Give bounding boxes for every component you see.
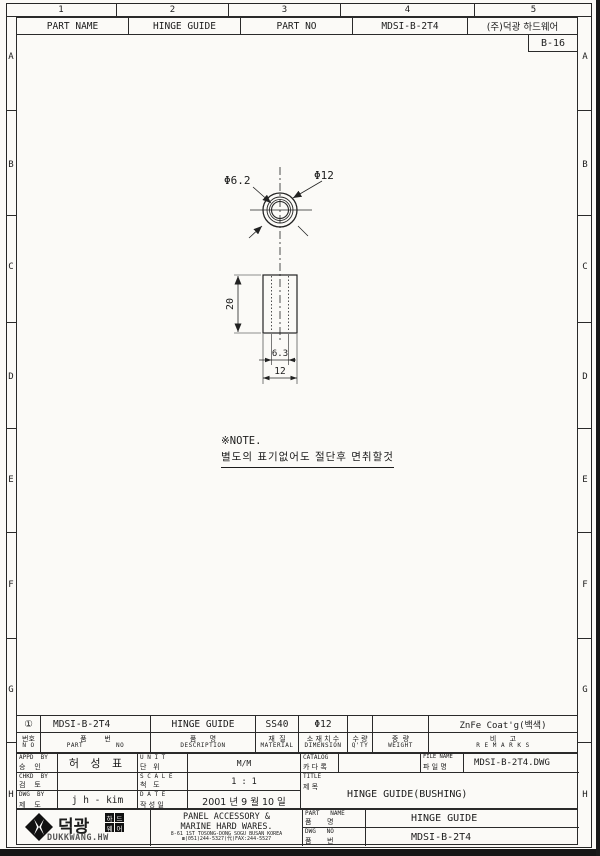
grid-letter-left-e: E — [6, 474, 16, 486]
dim-body-width: 12 — [274, 366, 285, 377]
parts-row-description: HINGE GUIDE — [151, 716, 256, 732]
zone-number-row: 1 2 3 4 5 — [6, 3, 592, 17]
note-title: ※NOTE. — [221, 434, 394, 450]
technical-drawing: Φ6.2 Φ12 20 6.3 12 — [16, 53, 578, 713]
grid-letter-left-a: A — [6, 51, 16, 63]
parts-header-dimension: 소 재 치 수DIMENSION — [299, 733, 348, 752]
parts-row: ① MDSI-B-2T4 HINGE GUIDE SS40 Φ12 ZnFe C… — [16, 715, 578, 733]
drawing-sheet: 1 2 3 4 5 PART NAME HINGE GUIDE PART NO … — [0, 0, 600, 856]
top-view — [249, 167, 322, 341]
part-no-value: MDSI-B-2T4 — [353, 18, 468, 34]
company-name: (주)덕광 하드웨어 — [468, 18, 577, 34]
margin-tick — [578, 742, 592, 743]
parts-row-dimension: Φ12 — [299, 716, 348, 732]
parts-header-no: 번호N O — [17, 733, 41, 752]
drawing-note: ※NOTE. 별도의 표기없어도 절단후 면취할것 — [221, 434, 394, 468]
parts-header-qty: 수 량Q'TY — [348, 733, 373, 752]
grid-letter-right-e: E — [578, 474, 592, 486]
title-label: TITLE제 목 — [301, 773, 323, 792]
footer-dwg-no-label: DWG NO품 번 — [303, 828, 366, 846]
grid-letter-right-a: A — [578, 51, 592, 63]
grid-letter-left-d: D — [6, 371, 16, 383]
dwg-by-label: DWG BY제 도 — [17, 791, 58, 810]
side-view — [234, 275, 297, 384]
chkd-by-label: CHKD BY검 토 — [17, 773, 58, 791]
unit-value: M/M — [188, 754, 301, 773]
footer-dwg-no-value: MDSI-B-2T4 — [366, 828, 579, 846]
zone-number-1: 1 — [6, 3, 117, 16]
margin-tick — [578, 322, 592, 323]
grid-letter-left-b: B — [6, 159, 16, 171]
logo-hardware-blocks: 하 드 웨 어 — [105, 813, 124, 832]
parts-header-material: 재 질MATERIAL — [256, 733, 299, 752]
parts-header-description: 품 명DESCRIPTION — [151, 733, 256, 752]
title-header-row: PART NAME HINGE GUIDE PART NO MDSI-B-2T4… — [16, 17, 578, 35]
footer-part-name-value: HINGE GUIDE — [366, 810, 579, 828]
scale-value: 1 : 1 — [188, 773, 301, 791]
margin-tick — [6, 110, 16, 111]
dim-inner-dia: Φ6.2 — [224, 174, 251, 187]
margin-tick — [578, 428, 592, 429]
grid-letter-left-f: F — [6, 579, 16, 591]
margin-tick — [578, 638, 592, 639]
unit-label: U N I T단 위 — [138, 754, 188, 773]
dim-hole-width: 6.3 — [272, 349, 288, 359]
catalog-label: CATALOG카 다 록 — [301, 754, 339, 773]
grid-letter-right-f: F — [578, 579, 592, 591]
appd-by-label: APPD BY승 인 — [17, 754, 58, 773]
parts-row-remarks: ZnFe Coat'g(백색) — [429, 716, 577, 732]
margin-tick — [6, 428, 16, 429]
grid-letter-left-h: H — [6, 789, 16, 801]
company-info-cell: PANEL ACCESSORY & MARINE HARD WARES. 8-6… — [151, 810, 303, 846]
sheet-number-box: B-16 — [528, 34, 578, 52]
catalog-value — [339, 754, 421, 773]
date-label: D A T E작 성 일 — [138, 791, 188, 810]
footer-part-name-label: PART NAME품 명 — [303, 810, 366, 828]
file-name-value: MDSI-B-2T4.DWG — [464, 754, 579, 773]
parts-header-weight: 중 량WEIGHT — [373, 733, 429, 752]
footer-block: 덕광 하 드 웨 어 DUKKWANG.HW PANEL ACCESSORY &… — [16, 809, 578, 845]
margin-tick — [6, 742, 16, 743]
zone-number-2: 2 — [117, 3, 229, 16]
parts-header-part-no: 품 번PART NO — [41, 733, 151, 752]
company-phone: ☎(051)244-5327(代)FAX:244-5527 — [182, 837, 271, 843]
margin-tick — [6, 532, 16, 533]
grid-letter-right-h: H — [578, 789, 592, 801]
part-no-label: PART NO — [241, 18, 353, 34]
margin-tick — [6, 638, 16, 639]
scale-label: S C A L E척 도 — [138, 773, 188, 791]
scan-edge-bottom — [0, 849, 600, 856]
approval-block: APPD BY승 인 허 성 표 U N I T단 위 M/M CATALOG카… — [16, 753, 578, 809]
logo-roman-text: DUKKWANG.HW — [47, 833, 109, 843]
note-body: 별도의 표기없어도 절단후 면취할것 — [221, 450, 394, 468]
parts-header-remarks: 비 고R E M A R K S — [429, 733, 577, 752]
parts-header-row: 번호N O 품 번PART NO 품 명DESCRIPTION 재 질MATER… — [16, 732, 578, 753]
zone-number-4: 4 — [341, 3, 475, 16]
margin-tick — [578, 110, 592, 111]
date-value: 2001 년 9 월 10 일 — [188, 791, 301, 810]
dim-height: 20 — [225, 298, 236, 310]
title-cell: TITLE제 목 HINGE GUIDE(BUSHING) — [301, 773, 579, 810]
dwg-by-value: j h - kim — [58, 791, 138, 810]
zone-number-5: 5 — [475, 3, 592, 16]
part-name-label: PART NAME — [17, 18, 129, 34]
title-value: HINGE GUIDE(BUSHING) — [347, 789, 467, 800]
dim-outer-dia: Φ12 — [314, 169, 334, 182]
margin-tick — [578, 215, 592, 216]
scan-edge-right — [596, 0, 600, 856]
appd-by-value: 허 성 표 — [58, 754, 138, 773]
chkd-by-value — [58, 773, 138, 791]
parts-row-material: SS40 — [256, 716, 299, 732]
parts-row-no: ① — [17, 716, 41, 732]
grid-letter-left-c: C — [6, 261, 16, 273]
parts-row-weight — [373, 716, 429, 732]
zone-number-3: 3 — [229, 3, 341, 16]
grid-letter-right-c: C — [578, 261, 592, 273]
file-name-label: FILE NAME파 일 명 — [421, 754, 464, 773]
margin-tick — [578, 532, 592, 533]
grid-letter-left-g: G — [6, 684, 16, 696]
company-logo-cell: 덕광 하 드 웨 어 DUKKWANG.HW — [17, 810, 151, 846]
parts-row-qty — [348, 716, 373, 732]
grid-letter-right-g: G — [578, 684, 592, 696]
margin-tick — [6, 215, 16, 216]
part-name-value: HINGE GUIDE — [129, 18, 241, 34]
grid-letter-right-b: B — [578, 159, 592, 171]
grid-letter-right-d: D — [578, 371, 592, 383]
margin-tick — [6, 322, 16, 323]
parts-row-part-no: MDSI-B-2T4 — [41, 716, 151, 732]
